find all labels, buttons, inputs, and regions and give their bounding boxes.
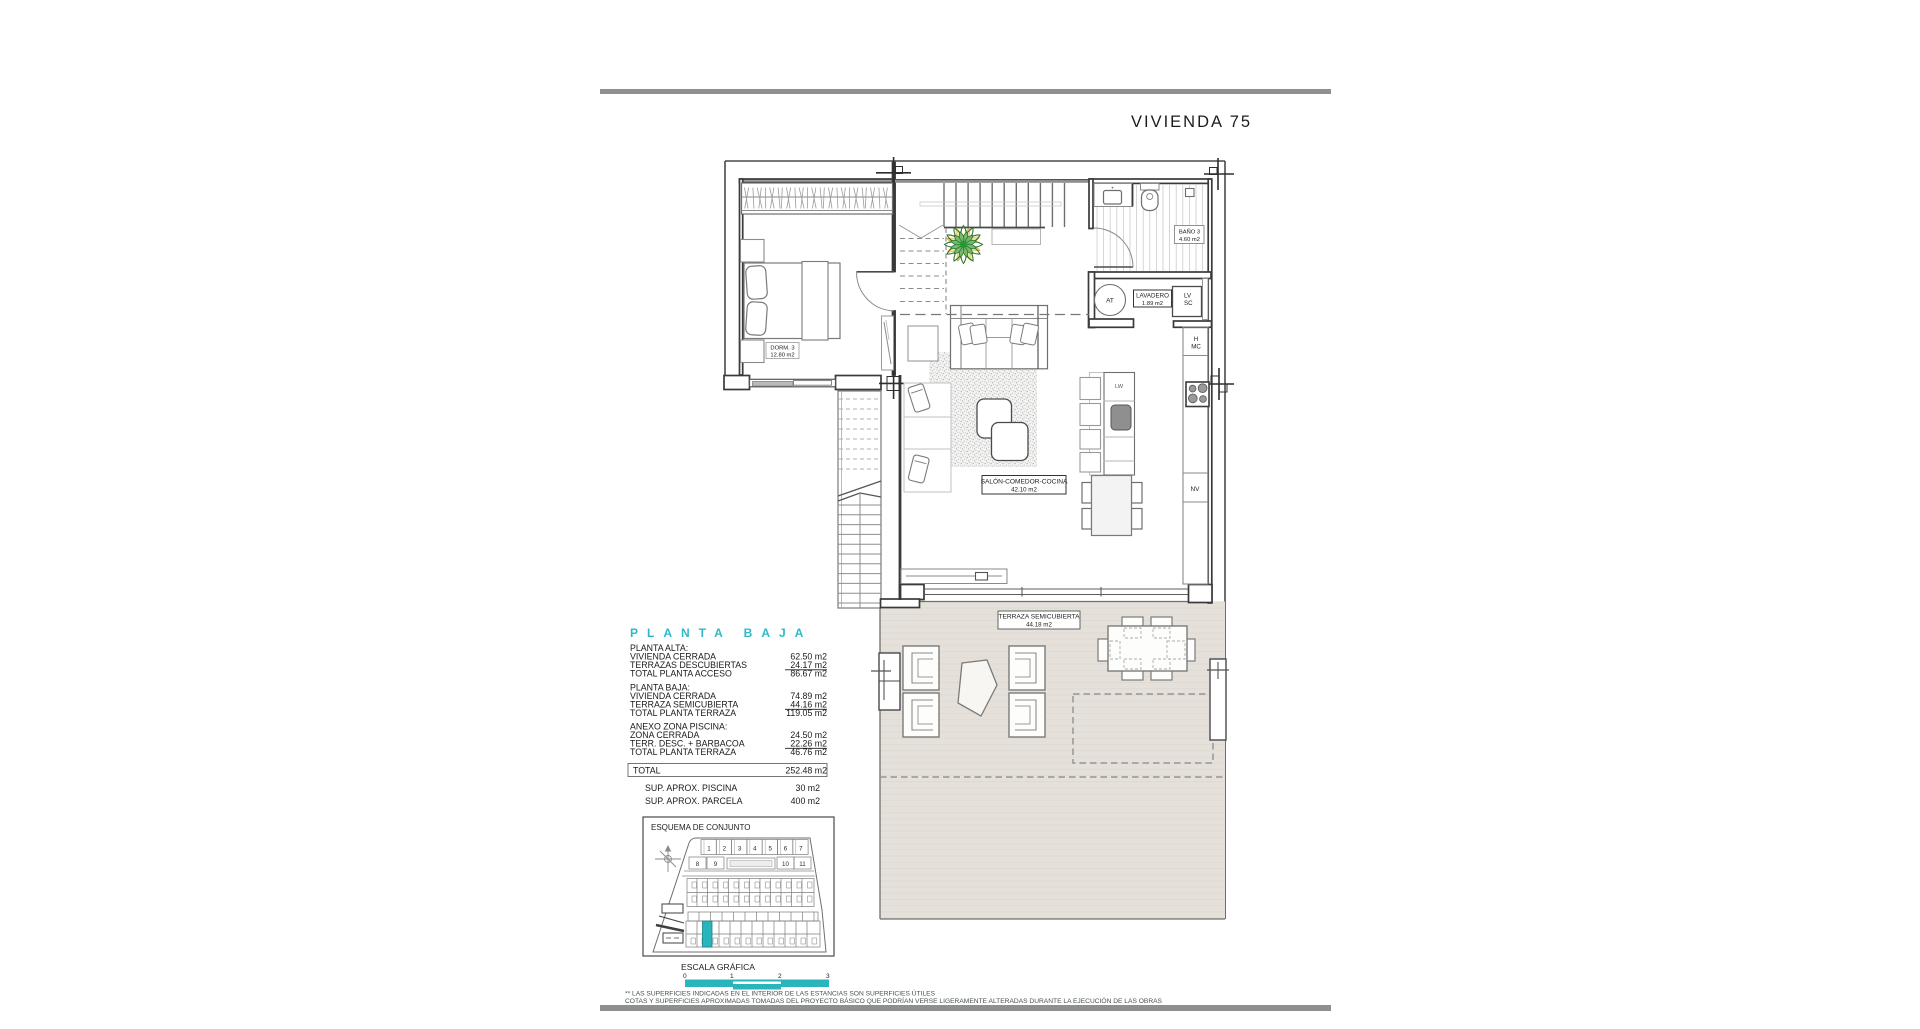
svg-text:TERRAZA SEMICUBIERTA: TERRAZA SEMICUBIERTA: [998, 614, 1080, 621]
svg-text:TOTAL PLANTA TERRAZA: TOTAL PLANTA TERRAZA: [630, 747, 736, 757]
svg-text:8: 8: [696, 861, 700, 868]
svg-text:5: 5: [768, 846, 772, 853]
svg-text:AT: AT: [1106, 298, 1114, 305]
svg-text:44.18 m2: 44.18 m2: [1026, 622, 1052, 629]
svg-text:42.10 m2: 42.10 m2: [1011, 487, 1037, 494]
svg-text:2: 2: [723, 846, 727, 853]
svg-text:SC: SC: [1184, 300, 1193, 307]
svg-text:LW: LW: [1115, 384, 1124, 390]
svg-text:TOTAL: TOTAL: [633, 766, 661, 776]
svg-text:SUP. APROX. PARCELA: SUP. APROX. PARCELA: [645, 796, 743, 806]
svg-text:2: 2: [778, 973, 782, 980]
svg-text:LAVADERO: LAVADERO: [1136, 293, 1169, 300]
svg-text:TOTAL PLANTA ACCESO: TOTAL PLANTA ACCESO: [630, 669, 732, 679]
svg-text:9: 9: [714, 861, 718, 868]
svg-text:VIVIENDA 75: VIVIENDA 75: [1131, 113, 1252, 131]
svg-text:** LAS SUPERFICIES INDICADAS E: ** LAS SUPERFICIES INDICADAS EN EL INTER…: [625, 989, 935, 998]
svg-text:0: 0: [683, 973, 687, 980]
svg-text:3: 3: [826, 973, 830, 980]
svg-text:1: 1: [730, 973, 734, 980]
svg-text:SALÓN-COMEDOR-COCINA: SALÓN-COMEDOR-COCINA: [981, 477, 1068, 486]
svg-text:TOTAL PLANTA TERRAZA: TOTAL PLANTA TERRAZA: [630, 708, 736, 718]
svg-text:BAÑO 3: BAÑO 3: [1179, 229, 1200, 236]
svg-text:12.80 m2: 12.80 m2: [770, 353, 794, 359]
svg-text:DORM. 3: DORM. 3: [770, 346, 794, 352]
svg-text:COTAS Y SUPERFICIES APROXIMADA: COTAS Y SUPERFICIES APROXIMADAS TOMADAS …: [625, 996, 1162, 1005]
svg-text:4.60 m2: 4.60 m2: [1179, 237, 1200, 243]
svg-text:ESQUEMA DE CONJUNTO: ESQUEMA DE CONJUNTO: [651, 823, 750, 832]
svg-text:11: 11: [799, 861, 806, 868]
svg-text:4: 4: [753, 846, 757, 853]
svg-text:10: 10: [782, 861, 789, 868]
svg-text:86.67 m2: 86.67 m2: [790, 669, 827, 679]
svg-text:1.89 m2: 1.89 m2: [1142, 301, 1163, 307]
svg-text:6: 6: [784, 846, 788, 853]
svg-text:1: 1: [707, 846, 711, 853]
svg-text:252.48 m2: 252.48 m2: [785, 766, 827, 776]
svg-text:PLANTA BAJA: PLANTA BAJA: [630, 626, 812, 640]
svg-text:7: 7: [799, 846, 803, 853]
svg-text:ESCALA GRÁFICA: ESCALA GRÁFICA: [681, 962, 755, 972]
svg-text:3: 3: [738, 846, 742, 853]
svg-text:46.76 m2: 46.76 m2: [790, 747, 827, 757]
svg-text:SUP. APROX. PISCINA: SUP. APROX. PISCINA: [645, 783, 737, 793]
svg-text:MC: MC: [1191, 344, 1201, 351]
svg-text:30 m2: 30 m2: [796, 783, 821, 793]
svg-text:NV: NV: [1191, 486, 1201, 493]
svg-text:H: H: [1194, 336, 1198, 343]
svg-text:119.05 m2: 119.05 m2: [786, 708, 827, 718]
svg-text:LV: LV: [1184, 293, 1192, 300]
svg-text:400 m2: 400 m2: [791, 796, 820, 806]
